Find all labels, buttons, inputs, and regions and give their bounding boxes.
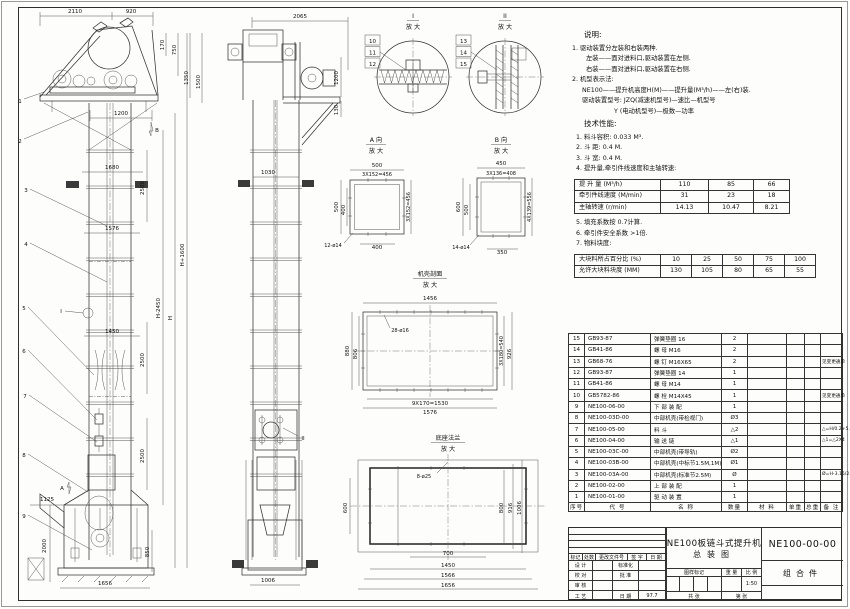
dim-label: 500 [464, 204, 470, 215]
dim-label: 1566 [441, 573, 455, 579]
spec-label: 主轴转速 (r/min) [575, 202, 661, 214]
bom-remark [821, 334, 843, 345]
bom-code: GB41-86 [585, 345, 651, 356]
bom-unit-weight [787, 367, 805, 378]
dim-label: 1350 [184, 71, 190, 85]
dim-label: 2500 [140, 353, 146, 367]
parts-list-table: 15 GB93-87 弹簧垫圈 16 2 14 GB41-86 螺 母 M16 … [568, 333, 843, 512]
title-block: 标记 处数 更改文件号 签 字 日 期 设 计 标准化 校 对 批 准 [568, 527, 842, 600]
dim-label: 3X152=456 [406, 192, 412, 222]
dim-label: 500 [372, 163, 383, 169]
signature-row: 设 计 标准化 [569, 561, 666, 571]
bom-total-weight [805, 390, 821, 401]
sig-label: 校 对 [569, 571, 593, 580]
detail-view-i: I 放 大 10 11 12 [365, 13, 452, 116]
marker-label: II [301, 436, 305, 442]
bom-qty: 1 [722, 492, 748, 503]
parts-list-body: 15 GB93-87 弹簧垫圈 16 2 14 GB41-86 螺 母 M16 … [569, 334, 843, 503]
bom-remark [821, 492, 843, 503]
part-type-text: 组合件 [783, 568, 822, 579]
section-subtitle: 放 大 [441, 445, 455, 453]
bom-remark [821, 345, 843, 356]
bom-material [748, 345, 787, 356]
table-row: 提 升 量 (M³/h) 110 85 66 [575, 179, 790, 191]
bom-code: NE100-03B-00 [585, 458, 651, 469]
signature-row: 校 对 批 准 [569, 571, 666, 581]
table-row: 8 NE100-03D-00 中部机壳(带检视门) Ø3 [569, 413, 843, 424]
tech-line: 4. 提升量,牵引件线速度和主轴转速: [572, 164, 844, 175]
bom-part-name: 螺 栓 M14X45 [651, 390, 722, 401]
signature-rows: 设 计 标准化 校 对 批 准 审 核 [569, 561, 666, 601]
balloon-label: 12 [369, 62, 376, 68]
bom-remark [821, 446, 843, 457]
notes-list: 1. 驱动装置分左装和右装两种.左装——面对进料口,驱动装置在左侧.右装——面对… [572, 44, 844, 118]
spec-value: 23 [709, 191, 754, 203]
bom-code: NE100-01-00 [585, 492, 651, 503]
dim-label: 806 [353, 348, 359, 359]
dim-label: 1456 [423, 296, 437, 302]
spec-value: 10.47 [709, 202, 754, 214]
sig-blank [593, 561, 613, 570]
bom-qty: 1 [722, 401, 748, 412]
spec-value: 25 [692, 254, 723, 266]
sig-value: 97.7 [639, 591, 666, 601]
section-title: 底座法兰 [436, 434, 461, 442]
balloon-label: 9 [22, 514, 26, 520]
bom-no: 1 [569, 492, 585, 503]
dim-label: 1576 [105, 226, 119, 232]
bom-unit-weight [787, 345, 805, 356]
bom-material [748, 469, 787, 480]
balloon-label: 8 [22, 453, 26, 459]
bom-qty: Ø [722, 469, 748, 480]
bom-code: GB93-87 [585, 334, 651, 345]
bom-qty: 2 [722, 334, 748, 345]
spec-label: 提 升 量 (M³/h) [575, 179, 661, 191]
bom-unit-weight [787, 413, 805, 424]
mark-box [708, 577, 722, 592]
bom-qty: △1 [722, 435, 748, 446]
mid-header: 重 量 [722, 569, 742, 577]
detail-title: II [503, 13, 507, 20]
dim-label: 1030 [261, 170, 275, 176]
sig-label-2: 标准化 [613, 561, 639, 570]
table-row: 2 NE100-02-00 上 部 装 配 1 [569, 480, 843, 491]
balloon-label: 1 [18, 99, 22, 105]
note-line: 右装——面对进料口,驱动装置在右侧. [572, 65, 844, 76]
sheet-count-label: 共 张 [666, 592, 722, 601]
dim-label: 130 [334, 104, 340, 115]
section-title: 机壳剖面 [418, 270, 443, 278]
tech-line: 3. 斗 宽: 0.4 M. [572, 154, 844, 165]
detail-view-ii: II 放 大 13 14 15 [456, 13, 544, 116]
sheet-number-label: 第 张 [722, 592, 762, 601]
sig-label-2: 批 准 [613, 571, 639, 580]
bom-material [748, 435, 787, 446]
bom-no: 11 [569, 379, 585, 390]
spec-value: 85 [709, 179, 754, 191]
bom-total-weight [805, 446, 821, 457]
bom-qty: Ø3 [722, 413, 748, 424]
bom-material [748, 334, 787, 345]
bom-code: NE100-04-00 [585, 435, 651, 446]
bom-remark [821, 458, 843, 469]
bom-qty: Ø1 [722, 458, 748, 469]
rev-header: 更改文件号 [596, 554, 628, 561]
section-title: A 向 [370, 136, 382, 144]
dim-label: 2065 [293, 14, 307, 20]
part-type: 组合件 [762, 561, 843, 586]
sig-label: 设 计 [569, 561, 593, 570]
table-row: 15 GB93-87 弹簧垫圈 16 2 [569, 334, 843, 345]
dim-label: 1500 [196, 75, 202, 89]
detail-subtitle: 放 大 [498, 23, 512, 31]
sig-blank [593, 581, 613, 590]
dim-label: 1006 [261, 578, 275, 584]
dim-label: 1125 [40, 497, 54, 503]
spec-label: 允许大块料块度 (MM) [575, 266, 661, 278]
bom-no: 4 [569, 458, 585, 469]
bom-total-weight [805, 334, 821, 345]
bom-no: 5 [569, 446, 585, 457]
balloon-label: 14 [460, 51, 467, 57]
bom-total-weight [805, 469, 821, 480]
bom-unit-weight [787, 379, 805, 390]
bom-unit-weight [787, 446, 805, 457]
bom-total-weight [805, 356, 821, 367]
bom-unit-weight [787, 480, 805, 491]
tech-line: 6. 牵引件安全系数 >1倍. [572, 229, 844, 240]
bom-part-name: 弹簧垫圈 14 [651, 367, 722, 378]
table-row: 7 NE100-05-00 料 斗 △2 △=H/0.2+5.75 [569, 424, 843, 435]
dim-label: 1450 [105, 329, 119, 335]
tech-list: 1. 料斗容积: 0.033 M³.2. 斗 距: 0.4 M.3. 斗 宽: … [572, 133, 844, 175]
table-row: 允许大块料块度 (MM) 130 105 80 65 55 [575, 266, 816, 278]
bom-unit-weight [787, 435, 805, 446]
dim-label: 1656 [98, 581, 112, 587]
speed-spec-table: 提 升 量 (M³/h) 110 85 66 牵引件线速度 (M/min) 31… [574, 179, 790, 215]
bom-code: NE100-03A-00 [585, 469, 651, 480]
section-subtitle: 放 大 [423, 281, 437, 289]
notes-heading: 说明: [584, 30, 844, 41]
bom-no: 10 [569, 390, 585, 401]
spec-value: 18 [754, 191, 790, 203]
dim-label: 350 [497, 250, 508, 256]
casing-section-view: 机壳剖面 放 大 1456 880 806 3X180=540 926 9X17… [345, 270, 513, 416]
bom-qty: Ø2 [722, 446, 748, 457]
bom-material [748, 424, 787, 435]
detail-title: I [412, 13, 414, 20]
bom-part-name: 料 斗 [651, 424, 722, 435]
spec-value: 100 [785, 254, 816, 266]
bom-no: 12 [569, 367, 585, 378]
bom-part-name: 弹簧垫圈 16 [651, 334, 722, 345]
spec-value: 31 [661, 191, 709, 203]
dim-label: 1200 [334, 71, 340, 85]
balloon-label: 3 [24, 188, 28, 194]
table-row: 3 NE100-03A-00 中部机壳(标准节2.5M) Ø Ø=H-3.15/… [569, 469, 843, 480]
bom-total-weight [805, 424, 821, 435]
mark-box [694, 577, 708, 592]
spec-value: 75 [754, 254, 785, 266]
spec-value: 50 [723, 254, 754, 266]
spec-value: 105 [692, 266, 723, 278]
dim-label: 1680 [105, 165, 119, 171]
bom-remark: △1=△2X4 [821, 435, 843, 446]
bom-code: NE100-03D-00 [585, 413, 651, 424]
bom-qty: 1 [722, 480, 748, 491]
table-row: 10 GB5782-86 螺 栓 M14X45 1 见变更通单 [569, 390, 843, 401]
bom-no: 9 [569, 401, 585, 412]
bom-no: 8 [569, 413, 585, 424]
dim-label: 880 [345, 345, 351, 356]
sig-value [639, 581, 666, 590]
dim-label: 4X139=556 [527, 192, 533, 222]
signature-row: 审 核 [569, 581, 666, 591]
bom-code: GB68-76 [585, 356, 651, 367]
bom-header: 序号 [569, 503, 585, 512]
bom-part-name: 中部机壳(带导轨) [651, 446, 722, 457]
bom-header: 名 称 [651, 503, 722, 512]
bom-part-name: 螺 钉 M16X65 [651, 356, 722, 367]
dim-label: 1006 [517, 501, 523, 515]
bom-total-weight [805, 458, 821, 469]
dim-label: 600 [456, 201, 462, 212]
bom-material [748, 390, 787, 401]
mark-box [680, 577, 694, 592]
bom-header: 材 料 [748, 503, 787, 512]
bom-code: NE100-06-00 [585, 401, 651, 412]
bom-code: NE100-02-00 [585, 480, 651, 491]
bom-no: 6 [569, 435, 585, 446]
dim-label: 1576 [423, 410, 437, 416]
empty-box [762, 586, 843, 601]
bom-header: 总重 [805, 503, 821, 512]
note-line: 2. 机型表示法: [572, 75, 844, 86]
section-b-view: B 向 放 大 450 3X136=408 600 500 350 4X139=… [452, 136, 533, 256]
spec-value: 55 [785, 266, 816, 278]
bom-qty: 1 [722, 390, 748, 401]
bom-total-weight [805, 367, 821, 378]
bom-unit-weight [787, 334, 805, 345]
note-line: 1. 驱动装置分左装和右装两种. [572, 44, 844, 55]
dim-label: 3X152=456 [362, 172, 392, 178]
bom-part-name: 输 送 链 [651, 435, 722, 446]
dim-label: 400 [341, 204, 347, 215]
bom-unit-weight [787, 492, 805, 503]
spec-value: 14.13 [661, 202, 709, 214]
bom-part-name: 中部机壳(带检视门) [651, 413, 722, 424]
spec-value: 130 [661, 266, 692, 278]
table-row: 4 NE100-03B-00 中部机壳(中标节1.5M,1M) Ø1 [569, 458, 843, 469]
balloon-label: 10 [369, 39, 376, 45]
bom-material [748, 367, 787, 378]
notes-panel: 说明: 1. 驱动装置分左装和右装两种.左装——面对进料口,驱动装置在左侧.右装… [572, 28, 844, 282]
dim-label: 500 [334, 201, 340, 212]
tech-line: 1. 料斗容积: 0.033 M³. [572, 133, 844, 144]
dim-label: 14-ø14 [452, 245, 470, 251]
drawing-title-line2: 总装图 [693, 549, 735, 560]
dim-label: 170 [160, 39, 166, 50]
table-row: 1 NE100-01-00 驱 动 装 置 1 [569, 492, 843, 503]
balloon-label: 7 [23, 394, 27, 400]
bom-remark [821, 401, 843, 412]
bom-unit-weight [787, 390, 805, 401]
table-row: 大块料所占百分比 (%) 10 25 50 75 100 [575, 254, 816, 266]
bom-total-weight [805, 435, 821, 446]
sig-label: 工 艺 [569, 591, 593, 601]
tech-line: 2. 斗 距: 0.4 M. [572, 143, 844, 154]
bom-header-row: 序号 代 号 名 称 数量 材 料 单重 总重 备 注 [569, 503, 843, 512]
note-line: Y (电动机型号)—极数—功率 [572, 107, 844, 118]
mark-box [666, 577, 680, 592]
bom-material [748, 413, 787, 424]
section-title: B 向 [495, 136, 507, 144]
spec-value: 110 [661, 179, 709, 191]
spec-value: 8.21 [754, 202, 790, 214]
dim-label: 2110 [68, 9, 82, 15]
drawing-number: NE100-00-00 [762, 528, 843, 561]
dim-label: H-2450 [156, 297, 162, 318]
bom-qty: 1 [722, 379, 748, 390]
bom-unit-weight [787, 356, 805, 367]
balloon-label: 13 [460, 39, 467, 45]
dim-label: 9X170=1530 [412, 401, 449, 407]
tech-line: 7. 物料块度: [572, 239, 844, 250]
bom-header: 数量 [722, 503, 748, 512]
dim-label: 3X136=408 [486, 171, 516, 177]
base-flange-view: 底座法兰 放 大 600 800 916 1006 8-ø25 700 1450… [343, 434, 546, 589]
dim-label: 1450 [441, 563, 455, 569]
balloon-label: 5 [22, 306, 26, 312]
dim-label: 8-ø25 [417, 474, 431, 480]
note-line: 左装——面对进料口,驱动装置在左侧. [572, 54, 844, 65]
balloon-label: 6 [22, 349, 26, 355]
bom-material [748, 480, 787, 491]
tech-list-2: 5. 填充系数按 0.7计算.6. 牵引件安全系数 >1倍.7. 物料块度: [572, 218, 844, 250]
bom-unit-weight [787, 424, 805, 435]
bom-no: 13 [569, 356, 585, 367]
weight-box [722, 577, 742, 592]
bom-part-name: 中部机壳(标准节2.5M) [651, 469, 722, 480]
spec-value: 80 [723, 266, 754, 278]
bom-no: 2 [569, 480, 585, 491]
bom-total-weight [805, 401, 821, 412]
bom-code: GB5782-86 [585, 390, 651, 401]
dim-label: 750 [172, 44, 178, 55]
bom-code: NE100-03C-00 [585, 446, 651, 457]
balloon-label: 2 [18, 139, 22, 145]
bom-header: 单重 [787, 503, 805, 512]
bom-part-name: 驱 动 装 置 [651, 492, 722, 503]
bom-total-weight [805, 379, 821, 390]
sig-blank [593, 591, 613, 601]
bom-total-weight [805, 413, 821, 424]
rev-header: 标记 [569, 554, 583, 561]
sig-value [639, 561, 666, 570]
bom-remark [821, 367, 843, 378]
bom-remark: Ø=H-3.15/2.5 [821, 469, 843, 480]
bom-remark: △=H/0.2+5.75 [821, 424, 843, 435]
spec-value: 66 [754, 179, 790, 191]
bom-qty: △2 [722, 424, 748, 435]
sig-label-2: 日 期 [613, 591, 639, 601]
table-row: 5 NE100-03C-00 中部机壳(带导轨) Ø2 [569, 446, 843, 457]
bom-qty: 1 [722, 367, 748, 378]
drawing-title-line1: NE100板链斗式提升机 [667, 537, 761, 549]
table-row: 13 GB68-76 螺 钉 M16X65 2 见变更通单 [569, 356, 843, 367]
bom-code: GB93-87 [585, 367, 651, 378]
dim-label: 28-ø16 [391, 328, 409, 334]
bom-part-name: 中部机壳(中标节1.5M,1M) [651, 458, 722, 469]
rev-header: 处数 [583, 554, 596, 561]
table-row: 12 GB93-87 弹簧垫圈 14 1 [569, 367, 843, 378]
bom-unit-weight [787, 401, 805, 412]
dim-label: 12-ø14 [324, 243, 342, 249]
signature-row: 工 艺 日 期 97.7 [569, 591, 666, 601]
dim-label: H+1600 [180, 243, 186, 266]
bom-unit-weight [787, 458, 805, 469]
table-row: 11 GB41-86 螺 母 M14 1 [569, 379, 843, 390]
bom-material [748, 379, 787, 390]
bom-header: 代 号 [585, 503, 651, 512]
sig-label-2 [613, 581, 639, 590]
engineering-drawing-sheet: 2110 920 170 750 1350 1500 1200 B 1680 1… [0, 0, 850, 609]
bom-remark [821, 480, 843, 491]
dim-label: 600 [343, 502, 349, 513]
dim-label: 400 [372, 245, 383, 251]
dim-label: 450 [496, 161, 507, 167]
bom-code: NE100-05-00 [585, 424, 651, 435]
bom-material [748, 446, 787, 457]
balloon-label: 11 [369, 51, 376, 57]
tech-line: 5. 填充系数按 0.7计算. [572, 218, 844, 229]
bom-material [748, 492, 787, 503]
sig-value [639, 571, 666, 580]
table-row: 9 NE100-06-00 下 部 装 配 1 [569, 401, 843, 412]
sig-blank [593, 571, 613, 580]
bom-remark [821, 379, 843, 390]
mid-header: 图样标记 [666, 569, 722, 577]
bom-total-weight [805, 480, 821, 491]
dim-label: 1656 [441, 583, 455, 589]
table-row: 14 GB41-86 螺 母 M16 2 [569, 345, 843, 356]
spec-value: 65 [754, 266, 785, 278]
bom-part-name: 螺 母 M16 [651, 345, 722, 356]
section-subtitle: 放 大 [494, 147, 508, 155]
lump-size-table: 大块料所占百分比 (%) 10 25 50 75 100 允许大块料块度 (MM… [574, 254, 816, 278]
dim-label: 916 [508, 502, 514, 513]
dim-label: 926 [507, 348, 513, 359]
bom-header: 备 注 [821, 503, 843, 512]
drawing-title: NE100板链斗式提升机 总装图 [666, 528, 762, 569]
bom-remark: 见变更通单 [821, 356, 843, 367]
section-subtitle: 放 大 [369, 147, 383, 155]
bom-material [748, 401, 787, 412]
table-row: 6 NE100-04-00 输 送 链 △1 △1=△2X4 [569, 435, 843, 446]
rev-header: 日 期 [647, 554, 666, 561]
detail-subtitle: 放 大 [406, 23, 420, 31]
bom-material [748, 356, 787, 367]
mid-header: 比 例 [742, 569, 762, 577]
spec-label: 牵引件线速度 (M/min) [575, 191, 661, 203]
dim-label: 2500 [140, 449, 146, 463]
bom-qty: 2 [722, 345, 748, 356]
sig-label: 审 核 [569, 581, 593, 590]
bom-code: GB41-86 [585, 379, 651, 390]
bom-material [748, 458, 787, 469]
note-line: 驱动装置型号: JZQ(减速机型号)—速比—机型号 [572, 96, 844, 107]
